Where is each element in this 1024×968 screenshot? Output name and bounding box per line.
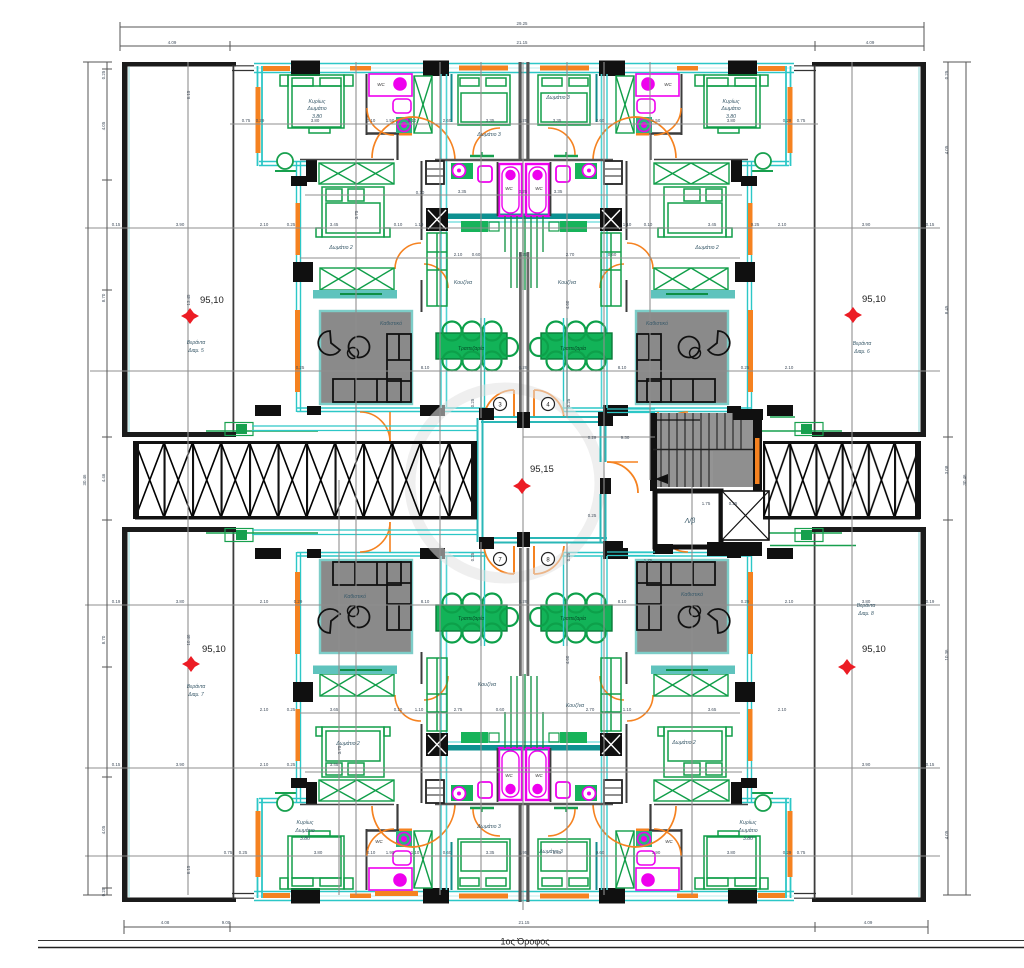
svg-text:0.10: 0.10 bbox=[644, 222, 653, 227]
svg-text:0.25: 0.25 bbox=[944, 70, 949, 79]
svg-text:0.25: 0.25 bbox=[519, 189, 528, 194]
svg-text:3.65: 3.65 bbox=[330, 707, 339, 712]
svg-text:Δωμάτιο 2: Δωμάτιο 2 bbox=[694, 245, 719, 251]
svg-text:0.60: 0.60 bbox=[496, 707, 505, 712]
svg-text:95,10: 95,10 bbox=[862, 644, 886, 655]
svg-text:0.60: 0.60 bbox=[596, 850, 605, 855]
svg-text:3.80: 3.80 bbox=[727, 118, 736, 123]
svg-text:Τραπεζαρία: Τραπεζαρία bbox=[458, 346, 484, 352]
svg-text:0.25: 0.25 bbox=[519, 252, 528, 257]
svg-text:8.10: 8.10 bbox=[618, 365, 627, 370]
svg-text:Καθιστικό: Καθιστικό bbox=[344, 593, 366, 600]
svg-text:3.45: 3.45 bbox=[330, 222, 339, 227]
svg-text:1.90: 1.90 bbox=[652, 850, 661, 855]
svg-text:Δωμάτιο 3: Δωμάτιο 3 bbox=[545, 95, 570, 101]
svg-text:3.80: 3.80 bbox=[862, 599, 871, 604]
svg-text:0.75: 0.75 bbox=[224, 850, 233, 855]
svg-text:1.75: 1.75 bbox=[644, 558, 653, 563]
svg-text:3.80: 3.80 bbox=[314, 850, 323, 855]
svg-text:8.45: 8.45 bbox=[944, 305, 949, 314]
svg-text:Δωμάτιο: Δωμάτιο bbox=[737, 828, 757, 834]
svg-text:2.10: 2.10 bbox=[260, 762, 269, 767]
svg-text:WC: WC bbox=[665, 839, 673, 844]
svg-text:3.90: 3.90 bbox=[862, 222, 871, 227]
svg-text:2.10: 2.10 bbox=[260, 222, 269, 227]
svg-text:Καθιστικό: Καθιστικό bbox=[646, 320, 668, 327]
svg-text:Βεράντα: Βεράντα bbox=[853, 341, 872, 347]
svg-text:4.60: 4.60 bbox=[565, 655, 570, 664]
svg-text:95,10: 95,10 bbox=[202, 644, 226, 655]
svg-text:0.10: 0.10 bbox=[416, 190, 425, 195]
svg-text:2.70: 2.70 bbox=[566, 252, 575, 257]
svg-text:6.15: 6.15 bbox=[186, 865, 191, 874]
svg-text:3.45: 3.45 bbox=[708, 222, 717, 227]
svg-text:Δωμάτιο: Δωμάτιο bbox=[720, 106, 740, 112]
svg-text:0.19: 0.19 bbox=[926, 599, 935, 604]
svg-text:Κυρίως: Κυρίως bbox=[740, 820, 757, 826]
svg-text:10.36: 10.36 bbox=[944, 649, 949, 661]
svg-text:WC: WC bbox=[375, 839, 383, 844]
svg-text:4.08: 4.08 bbox=[161, 920, 170, 925]
svg-text:0.29: 0.29 bbox=[783, 850, 792, 855]
svg-text:30.46: 30.46 bbox=[962, 474, 967, 486]
svg-text:4.05: 4.05 bbox=[944, 145, 949, 154]
svg-text:0.29: 0.29 bbox=[783, 118, 792, 123]
svg-text:0.25: 0.25 bbox=[566, 552, 571, 561]
svg-text:0.25: 0.25 bbox=[101, 70, 106, 79]
svg-text:Κυρίως: Κυρίως bbox=[309, 99, 326, 105]
svg-text:3.35: 3.35 bbox=[486, 118, 495, 123]
svg-text:3.35: 3.35 bbox=[458, 189, 467, 194]
svg-text:6.15: 6.15 bbox=[186, 90, 191, 99]
svg-text:Δωμάτιο 3: Δωμάτιο 3 bbox=[476, 824, 501, 830]
svg-text:WC: WC bbox=[664, 82, 672, 87]
svg-text:2.60: 2.60 bbox=[443, 118, 452, 123]
svg-text:2.75: 2.75 bbox=[454, 707, 463, 712]
svg-text:8.70: 8.70 bbox=[101, 635, 106, 644]
svg-text:3.80: 3.80 bbox=[311, 118, 320, 123]
svg-text:Δωμάτιο 2: Δωμάτιο 2 bbox=[328, 245, 353, 251]
svg-text:0.15: 0.15 bbox=[112, 222, 121, 227]
svg-text:WC: WC bbox=[505, 773, 513, 778]
svg-text:1.10: 1.10 bbox=[415, 707, 424, 712]
svg-text:3.45: 3.45 bbox=[330, 762, 339, 767]
svg-text:Τραπεζαρία: Τραπεζαρία bbox=[560, 616, 586, 622]
svg-text:0.29: 0.29 bbox=[741, 599, 750, 604]
svg-text:Διαμ. 5: Διαμ. 5 bbox=[187, 348, 204, 354]
svg-text:1.10: 1.10 bbox=[415, 222, 424, 227]
svg-text:9.00: 9.00 bbox=[222, 920, 231, 925]
svg-text:0.10: 0.10 bbox=[367, 850, 376, 855]
svg-text:0.15: 0.15 bbox=[112, 762, 121, 767]
svg-text:2.10: 2.10 bbox=[785, 365, 794, 370]
svg-text:2.10: 2.10 bbox=[778, 707, 787, 712]
svg-text:Λ/β: Λ/β bbox=[684, 518, 696, 525]
svg-text:Κυρίως: Κυρίως bbox=[723, 99, 740, 105]
svg-text:Δωμάτιο 2: Δωμάτιο 2 bbox=[671, 740, 696, 746]
svg-text:0.29: 0.29 bbox=[519, 599, 528, 604]
svg-text:0.25: 0.25 bbox=[287, 707, 296, 712]
svg-text:3.80: 3.80 bbox=[300, 836, 310, 842]
svg-text:Καθιστικό: Καθιστικό bbox=[380, 320, 402, 327]
svg-text:0.25: 0.25 bbox=[101, 887, 106, 896]
svg-text:2.60: 2.60 bbox=[596, 118, 605, 123]
svg-text:Διαμ. 7: Διαμ. 7 bbox=[187, 692, 204, 698]
svg-text:0.95: 0.95 bbox=[519, 850, 528, 855]
svg-text:0.75: 0.75 bbox=[242, 118, 251, 123]
svg-text:21.15: 21.15 bbox=[519, 920, 531, 925]
svg-text:0.25: 0.25 bbox=[741, 365, 750, 370]
svg-text:4.05: 4.05 bbox=[944, 830, 949, 839]
svg-text:3.90: 3.90 bbox=[176, 762, 185, 767]
svg-text:0.25: 0.25 bbox=[287, 762, 296, 767]
svg-text:2.10: 2.10 bbox=[778, 222, 787, 227]
svg-text:0.10: 0.10 bbox=[367, 118, 376, 123]
svg-text:0.25: 0.25 bbox=[519, 118, 528, 123]
svg-text:95,10: 95,10 bbox=[200, 295, 224, 306]
svg-text:Διαμ. 6: Διαμ. 6 bbox=[853, 349, 870, 355]
svg-text:Βεράντα: Βεράντα bbox=[187, 340, 206, 346]
svg-text:4.46: 4.46 bbox=[101, 473, 106, 482]
svg-text:9.30: 9.30 bbox=[621, 435, 630, 440]
svg-text:3.80: 3.80 bbox=[743, 836, 753, 842]
svg-text:Τραπεζαρία: Τραπεζαρία bbox=[560, 346, 586, 352]
svg-text:3.35: 3.35 bbox=[554, 189, 563, 194]
svg-text:0.25: 0.25 bbox=[588, 513, 597, 518]
svg-text:3.08: 3.08 bbox=[944, 465, 949, 474]
svg-text:0.15: 0.15 bbox=[926, 762, 935, 767]
svg-text:1.75: 1.75 bbox=[702, 501, 711, 506]
svg-text:0.29: 0.29 bbox=[519, 365, 528, 370]
svg-text:Κουζίνα: Κουζίνα bbox=[454, 280, 473, 286]
svg-text:0.25: 0.25 bbox=[566, 398, 571, 407]
svg-text:21.15: 21.15 bbox=[517, 40, 529, 45]
svg-text:2.10: 2.10 bbox=[454, 252, 463, 257]
svg-text:1.10: 1.10 bbox=[411, 850, 420, 855]
svg-text:Κυρίως: Κυρίως bbox=[297, 820, 314, 826]
svg-text:Τραπεζαρία: Τραπεζαρία bbox=[458, 616, 484, 622]
svg-text:WC: WC bbox=[535, 773, 543, 778]
svg-text:0.60: 0.60 bbox=[443, 850, 452, 855]
svg-text:4.09: 4.09 bbox=[866, 40, 875, 45]
svg-text:0.19: 0.19 bbox=[112, 599, 121, 604]
svg-text:0.60: 0.60 bbox=[472, 252, 481, 257]
svg-text:Βεράντα: Βεράντα bbox=[187, 684, 206, 690]
svg-text:8.70: 8.70 bbox=[101, 293, 106, 302]
svg-text:30.46: 30.46 bbox=[82, 474, 87, 486]
svg-text:3.80: 3.80 bbox=[727, 850, 736, 855]
svg-text:8.10: 8.10 bbox=[618, 599, 627, 604]
svg-text:0.29: 0.29 bbox=[256, 118, 265, 123]
svg-text:0.15: 0.15 bbox=[926, 222, 935, 227]
svg-text:1.90: 1.90 bbox=[386, 850, 395, 855]
svg-text:1.50: 1.50 bbox=[652, 118, 661, 123]
svg-text:Δωμάτιο: Δωμάτιο bbox=[306, 106, 326, 112]
svg-text:2.70: 2.70 bbox=[586, 707, 595, 712]
svg-text:0.25: 0.25 bbox=[287, 222, 296, 227]
svg-text:WC: WC bbox=[535, 186, 543, 191]
svg-text:0.25: 0.25 bbox=[751, 222, 760, 227]
svg-text:1ος Όροφος: 1ος Όροφος bbox=[500, 937, 550, 947]
svg-text:29.25: 29.25 bbox=[517, 21, 529, 26]
svg-text:2.10: 2.10 bbox=[785, 599, 794, 604]
svg-text:95,15: 95,15 bbox=[530, 464, 554, 475]
svg-text:0.29: 0.29 bbox=[588, 435, 597, 440]
svg-text:0.25: 0.25 bbox=[470, 398, 475, 407]
svg-text:1.10: 1.10 bbox=[623, 707, 632, 712]
svg-text:10.46: 10.46 bbox=[186, 634, 191, 646]
svg-text:0.25: 0.25 bbox=[239, 850, 248, 855]
svg-text:WC: WC bbox=[377, 82, 385, 87]
svg-text:3.90: 3.90 bbox=[862, 762, 871, 767]
svg-text:4.09: 4.09 bbox=[864, 920, 873, 925]
svg-text:Διαμ. 8: Διαμ. 8 bbox=[857, 611, 874, 617]
svg-text:0.10: 0.10 bbox=[408, 118, 417, 123]
svg-text:Κουζίνα: Κουζίνα bbox=[478, 682, 497, 688]
svg-text:2.10: 2.10 bbox=[260, 599, 269, 604]
svg-text:13.45: 13.45 bbox=[186, 294, 191, 306]
svg-text:4.60: 4.60 bbox=[565, 300, 570, 309]
svg-text:3.35: 3.35 bbox=[486, 850, 495, 855]
svg-text:Δωμάτιο: Δωμάτιο bbox=[294, 828, 314, 834]
svg-text:4.05: 4.05 bbox=[101, 121, 106, 130]
svg-text:3.35: 3.35 bbox=[553, 850, 562, 855]
svg-text:3.90: 3.90 bbox=[176, 222, 185, 227]
svg-text:4.09: 4.09 bbox=[168, 40, 177, 45]
svg-text:8.10: 8.10 bbox=[421, 599, 430, 604]
svg-text:3.80: 3.80 bbox=[176, 599, 185, 604]
svg-text:Καθιστικό: Καθιστικό bbox=[681, 591, 703, 598]
svg-text:Κουζίνα: Κουζίνα bbox=[558, 280, 577, 286]
svg-text:1.50: 1.50 bbox=[386, 118, 395, 123]
svg-text:WC: WC bbox=[505, 186, 513, 191]
svg-text:0.29: 0.29 bbox=[294, 599, 303, 604]
svg-text:3.65: 3.65 bbox=[708, 707, 717, 712]
svg-text:3.35: 3.35 bbox=[553, 118, 562, 123]
svg-text:Κουζίνα: Κουζίνα bbox=[566, 703, 585, 709]
svg-text:0.10: 0.10 bbox=[394, 222, 403, 227]
svg-text:0.25: 0.25 bbox=[729, 501, 738, 506]
svg-text:3.75: 3.75 bbox=[337, 745, 342, 754]
svg-text:3.75: 3.75 bbox=[354, 210, 359, 219]
svg-text:0.10: 0.10 bbox=[394, 707, 403, 712]
svg-text:0.25: 0.25 bbox=[296, 365, 305, 370]
svg-text:8.10: 8.10 bbox=[421, 365, 430, 370]
svg-text:0.75: 0.75 bbox=[797, 850, 806, 855]
svg-text:2.10: 2.10 bbox=[260, 707, 269, 712]
svg-text:1.10: 1.10 bbox=[623, 222, 632, 227]
svg-text:Δωμάτιο 3: Δωμάτιο 3 bbox=[476, 132, 501, 138]
svg-text:95,10: 95,10 bbox=[862, 294, 886, 305]
svg-text:0.60: 0.60 bbox=[608, 252, 617, 257]
svg-text:0.75: 0.75 bbox=[797, 118, 806, 123]
svg-text:4.05: 4.05 bbox=[101, 825, 106, 834]
svg-text:0.25: 0.25 bbox=[470, 552, 475, 561]
